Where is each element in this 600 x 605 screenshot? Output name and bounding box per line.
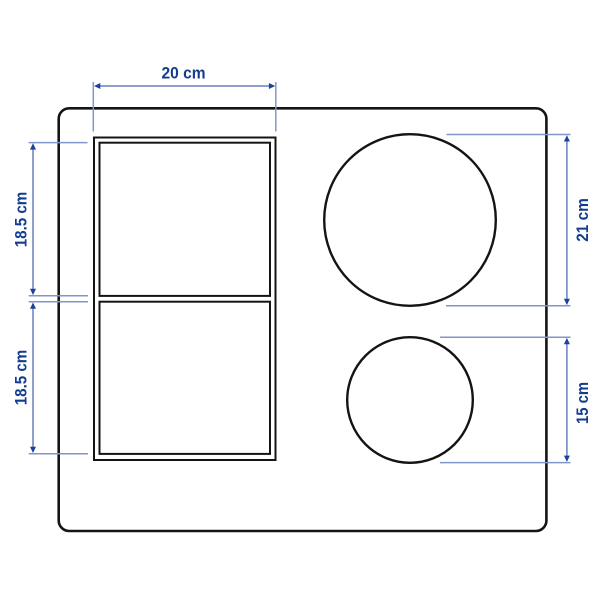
svg-text:20 cm: 20 cm xyxy=(162,64,206,83)
svg-text:18.5 cm: 18.5 cm xyxy=(12,350,31,406)
svg-text:21 cm: 21 cm xyxy=(573,198,592,242)
svg-text:18.5 cm: 18.5 cm xyxy=(12,192,31,248)
svg-text:15 cm: 15 cm xyxy=(573,382,592,424)
